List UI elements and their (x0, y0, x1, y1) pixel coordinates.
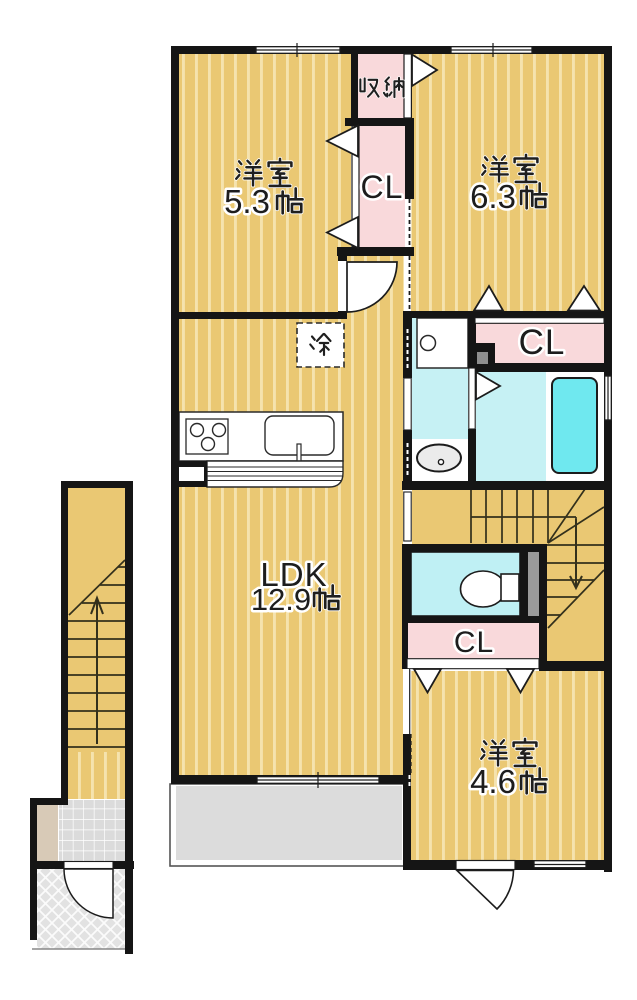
svg-text:6.3: 6.3 (470, 178, 516, 215)
svg-text:CL: CL (454, 626, 494, 659)
svg-text:CL: CL (519, 323, 566, 362)
svg-text:5.3: 5.3 (224, 183, 270, 220)
svg-text:4.6: 4.6 (470, 763, 516, 800)
svg-text:12.9: 12.9 (251, 582, 311, 617)
svg-text:CL: CL (361, 169, 404, 205)
